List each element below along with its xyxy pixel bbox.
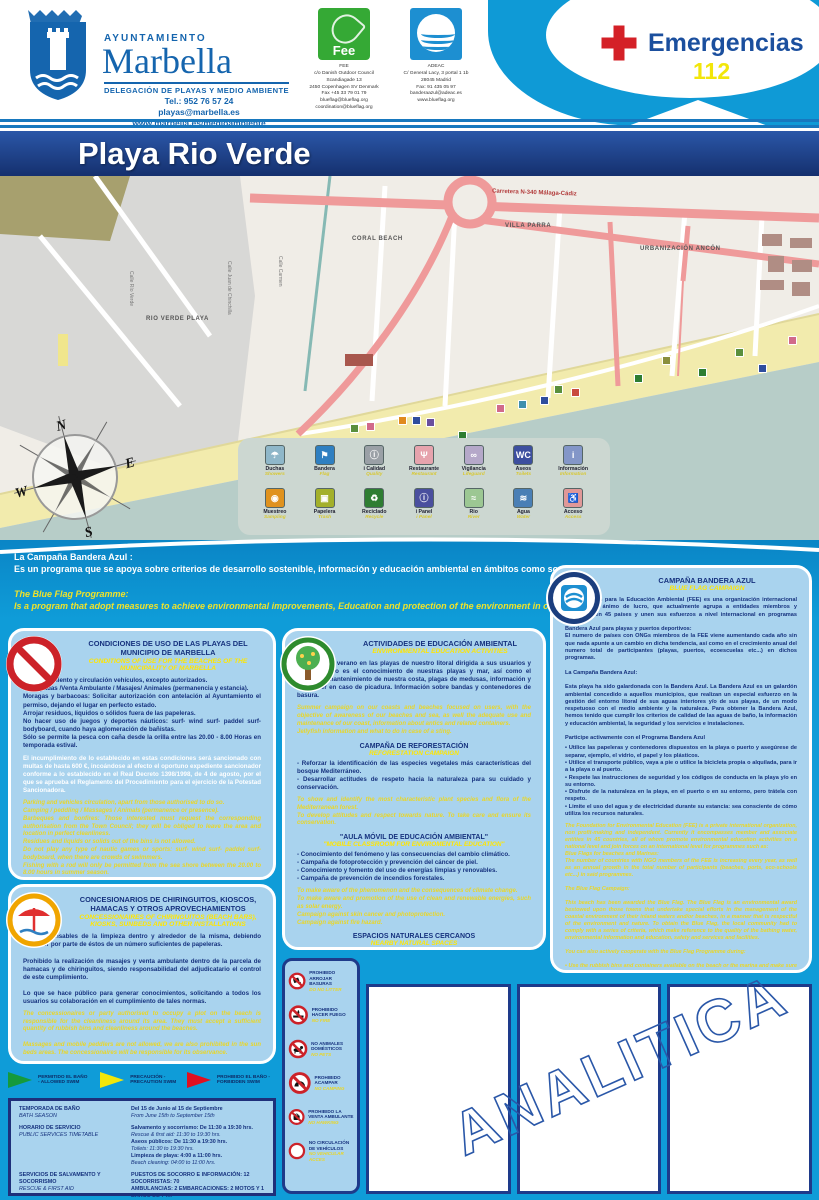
legend-label-en: Recycle xyxy=(349,515,399,520)
prohibition-hawking-en: NO HAWKING xyxy=(308,1120,338,1125)
red-flag-icon xyxy=(187,1072,211,1088)
no-hawking-icon xyxy=(288,1102,305,1132)
legend-label-en: Sampling xyxy=(250,515,300,520)
bandera-body-en: The Foundation for Environmental Educati… xyxy=(565,823,797,973)
prohibition-hawking-es: PROHIBIDO LA VENTA AMBULANTE xyxy=(308,1109,353,1120)
prohibition-vehicles: NO CIRCULACIÓN DE VEHÍCULOSNO VEHICULAR … xyxy=(288,1136,354,1166)
schedule-row-label: HORARIO DE SERVICIO PUBLIC SERVICES TIME… xyxy=(19,1125,131,1167)
map-label-calle-carmen: Calle Carmen xyxy=(277,256,283,287)
schedule-row-value: Salvamento y socorrismo: De 11:30 a 19:3… xyxy=(131,1125,265,1167)
schedule-row-label: TEMPORADA DE BAÑO BATH SEASON xyxy=(19,1106,131,1120)
legend-label-en: Flag xyxy=(300,472,350,477)
prohibition-pets: NO ANIMALES DOMÉSTICOSNO PETS xyxy=(288,1034,354,1064)
map-label-urbanizacion: URBANIZACIÓN ANCÓN xyxy=(640,246,721,252)
divider-line xyxy=(0,119,819,122)
prohibition-camping: PROHIBIDO ACAMPARNO CAMPING xyxy=(288,1068,354,1098)
prohibition-camping-es: PROHIBIDO ACAMPAR xyxy=(315,1075,341,1086)
map-label-calle-rio-verde: Calle Río Verde xyxy=(128,271,134,306)
restaurante-icon: Ψ xyxy=(414,445,434,465)
delegation-label: DELEGACIÓN DE PLAYAS Y MEDIO AMBIENTE xyxy=(104,82,289,95)
beach-service-marker xyxy=(518,400,527,409)
espacios-title: ESPACIOS NATURALES CERCANOS xyxy=(297,933,531,940)
legend-label-en: i Panel xyxy=(399,515,449,520)
marbella-crest-logo xyxy=(22,8,94,104)
fee-logo: Fee xyxy=(318,8,370,60)
yellow-flag-icon xyxy=(100,1072,124,1088)
i-panel-icon: ⓘ xyxy=(414,488,434,508)
reforestacion-title-en: REFORESTATION CAMPAIGN xyxy=(297,750,531,757)
legend-item-acceso: ♿AccesoAccess xyxy=(548,488,598,531)
no-litter-icon xyxy=(288,966,306,996)
i-calidad-icon: ⓘ xyxy=(364,445,384,465)
beach-service-marker xyxy=(366,422,375,431)
phone: Tel.: 952 76 57 24 xyxy=(84,96,314,107)
legend-item-aseos: WCAseosToilets xyxy=(499,445,549,488)
acceso-icon: ♿ xyxy=(563,488,583,508)
legend-item-muestreo: ◉MuestreoSampling xyxy=(250,488,300,531)
legend-label-en: Water xyxy=(499,515,549,520)
services-schedule-table: TEMPORADA DE BAÑO BATH SEASON Del 15 de … xyxy=(8,1098,276,1196)
prohibition-vehicles-es: NO CIRCULACIÓN DE VEHÍCULOS xyxy=(309,1140,349,1151)
yellow-flag-label: PRECAUCIÓN - PRECAUTION SWIM xyxy=(130,1075,177,1085)
reciclado-icon: ♻ xyxy=(364,488,384,508)
prohibition-litter: PROHIBIDO ARROJAR BASURASDO NO LITTER xyxy=(288,966,354,996)
compass-w: W xyxy=(14,484,31,502)
legend-item-bandera: ⚑BanderaFlag xyxy=(300,445,350,488)
adeac-address: ADEAC C/ General Lacy, 3 portal 1 1b 280… xyxy=(386,64,486,105)
blueflag-wave-icon xyxy=(417,14,455,52)
divider-line xyxy=(0,125,819,128)
emergency-banner: Emergencias 112 xyxy=(488,0,819,126)
legend-item-vigilancia: ∞VigilanciaLifeguard xyxy=(449,445,499,488)
aula-movil-title-en: "MOBILE CLASSROOM FOR ENVIROMENTAL EDUCA… xyxy=(297,841,531,848)
beach-service-marker xyxy=(398,416,407,425)
red-cross-icon xyxy=(598,22,640,64)
schedule-row-value: PUESTOS DE SOCORRO E INFORMACIÓN: 12 SOC… xyxy=(131,1172,265,1200)
aula-movil-body: - Conocimiento del fenómeno y las consec… xyxy=(297,851,531,883)
no-pets-icon xyxy=(288,1034,308,1064)
map-label-rio-verde-playa: RIO VERDE PLAYA xyxy=(146,316,209,322)
beach-service-marker xyxy=(554,385,563,394)
green-flag-icon xyxy=(8,1072,32,1088)
map-label-calle-juan: Calle Juan de Chinchilla xyxy=(226,261,232,315)
reforestacion-body: - Reforzar la identificación de las espe… xyxy=(297,760,531,792)
prohibition-fire: PROHIBIDO HACER FUEGONO FIRE xyxy=(288,1000,354,1030)
beach-map: VILLA PARRA CORAL BEACH URBANIZACIÓN ANC… xyxy=(0,176,819,540)
reforestacion-body-en: To show and identify the most characteri… xyxy=(297,797,531,828)
legend-label-en: Information xyxy=(548,472,598,477)
beach-service-marker xyxy=(496,404,505,413)
beach-service-marker xyxy=(788,336,797,345)
schedule-row-value: Del 15 de Junio al 15 de Septiembre From… xyxy=(131,1106,265,1120)
map-label-villa-parra: VILLA PARRA xyxy=(505,223,551,229)
prohibition-camping-en: NO CAMPING xyxy=(315,1086,345,1091)
reforestacion-title: CAMPAÑA DE REFORESTACIÓN xyxy=(297,743,531,750)
no-camping-icon xyxy=(288,1068,312,1098)
legend-label-en: Access xyxy=(548,515,598,520)
prohibition-vehicles-en: NO VEHICULAR ACCES xyxy=(309,1151,344,1162)
prohibition-hawking: PROHIBIDO LA VENTA AMBULANTENO HAWKING xyxy=(288,1102,354,1132)
aseos-icon: WC xyxy=(513,445,533,465)
información-icon: i xyxy=(563,445,583,465)
actividades-intro-en: Summer campaign on our coasts and beache… xyxy=(297,705,531,736)
legend-label-en: River xyxy=(449,515,499,520)
beach-service-marker xyxy=(735,348,744,357)
prohibition-fire-es: PROHIBIDO HACER FUEGO xyxy=(312,1007,346,1018)
legend-label-en: Quality xyxy=(349,472,399,477)
legend-label-en: Restaurant xyxy=(399,472,449,477)
panel-bandera-azul: CAMPAÑA BANDERA AZUL BLUE FLAG CAMPAIGN … xyxy=(550,565,812,973)
legend-item-papelera: ▣PapeleraTrash xyxy=(300,488,350,531)
beach-service-marker xyxy=(412,416,421,425)
compass-e: E xyxy=(123,455,137,472)
muestreo-icon: ◉ xyxy=(265,488,285,508)
beach-service-marker xyxy=(571,388,580,397)
page-title: Playa Rio Verde xyxy=(0,136,311,172)
aula-movil-title: "AULA MÓVIL DE EDUCACIÓN AMBIENTAL" xyxy=(297,834,531,841)
legend-label-en: Trash xyxy=(300,515,350,520)
beach-service-marker xyxy=(662,356,671,365)
duchas-icon: ☂ xyxy=(265,445,285,465)
beach-service-marker xyxy=(758,364,767,373)
fee-address: FEE c/o Danish Outdoor Council Scandiaga… xyxy=(292,64,396,112)
swim-flags-legend: PERMITIDO EL BAÑO - ALLOWED SWIM PRECAUC… xyxy=(8,1072,276,1088)
green-flag-label: PERMITIDO EL BAÑO - ALLOWED SWIM xyxy=(38,1075,90,1085)
compass-n: N xyxy=(54,417,69,435)
legend-item-duchas: ☂DuchasShowers xyxy=(250,445,300,488)
legend-item-reciclado: ♻RecicladoRecycle xyxy=(349,488,399,531)
beach-service-marker xyxy=(540,396,549,405)
condiciones-sanction: El incumplimiento de lo establecido en e… xyxy=(23,755,261,795)
prohibition-pets-en: NO PETS xyxy=(311,1052,331,1057)
legend-item-i-calidad: ⓘi CalidadQuality xyxy=(349,445,399,488)
condiciones-body-en: Parking and vehicles circulation, apart … xyxy=(23,800,261,878)
no-entry-badge xyxy=(6,636,62,692)
prohibition-pets-es: NO ANIMALES DOMÉSTICOS xyxy=(311,1041,343,1052)
bandera-icon: ⚑ xyxy=(315,445,335,465)
no-vehicles-icon xyxy=(288,1136,306,1166)
beach-service-marker xyxy=(350,424,359,433)
papelera-icon: ▣ xyxy=(315,488,335,508)
agua-icon: ≋ xyxy=(513,488,533,508)
legend-item-información: iInformaciónInformation xyxy=(548,445,598,488)
prohibition-fire-en: NO FIRE xyxy=(312,1018,331,1023)
blue-flag-badge xyxy=(546,570,602,626)
legend-label-en: Showers xyxy=(250,472,300,477)
emergency-label: Emergencias xyxy=(648,29,804,58)
prohibition-litter-en: DO NO LITTER xyxy=(309,987,341,992)
red-flag-label: PROHIBIDO EL BAÑO - FORBIDDEN SWIM xyxy=(217,1075,272,1085)
tree-badge xyxy=(280,636,336,692)
rio-icon: ≈ xyxy=(464,488,484,508)
adeac-blueflag-logo xyxy=(410,8,462,60)
beach-umbrella-badge xyxy=(6,892,62,948)
concesionarios-body-en: The concessionaires or party authorised … xyxy=(23,1011,261,1064)
legend-label-en: Toilets xyxy=(499,472,549,477)
beach-service-marker xyxy=(426,418,435,427)
city-name: Marbella xyxy=(102,40,232,82)
email: playas@marbella.es xyxy=(84,107,314,118)
no-fire-icon xyxy=(288,1000,309,1030)
legend-label-en: Lifeguard xyxy=(449,472,499,477)
prohibitions-panel: PROHIBIDO ARROJAR BASURASDO NO LITTER PR… xyxy=(282,958,360,1194)
intro-es-title: La Campaña Bandera Azul : xyxy=(14,551,714,563)
aula-movil-body-en: To make aware of the phenomenon and the … xyxy=(297,888,531,927)
bandera-bullets: • Utilice las papeleras y contenedores d… xyxy=(565,745,797,818)
legend-item-agua: ≋AguaWater xyxy=(499,488,549,531)
map-legend: ☂DuchasShowers⚑BanderaFlagⓘi CalidadQual… xyxy=(238,438,610,535)
espacios-title-en: NEARBY NATURAL SPACES xyxy=(297,940,531,947)
legend-item-rio: ≈RioRiver xyxy=(449,488,499,531)
beach-title-bar: Playa Rio Verde xyxy=(0,131,819,176)
legend-item-restaurante: ΨRestauranteRestaurant xyxy=(399,445,449,488)
header: AYUNTAMIENTO Marbella DELEGACIÓN DE PLAY… xyxy=(0,0,819,119)
beach-service-marker xyxy=(698,368,707,377)
legend-item-i-panel: ⓘi Paneli Panel xyxy=(399,488,449,531)
prohibition-litter-es: PROHIBIDO ARROJAR BASURAS xyxy=(309,970,335,986)
map-label-coral-beach: CORAL BEACH xyxy=(352,236,403,242)
beach-service-marker xyxy=(634,374,643,383)
white-chevron xyxy=(628,100,768,126)
schedule-row-label: SERVICIOS DE SALVAMENTO Y SOCORRISMO RES… xyxy=(19,1172,131,1200)
emergency-number: 112 xyxy=(693,58,730,85)
vigilancia-icon: ∞ xyxy=(464,445,484,465)
